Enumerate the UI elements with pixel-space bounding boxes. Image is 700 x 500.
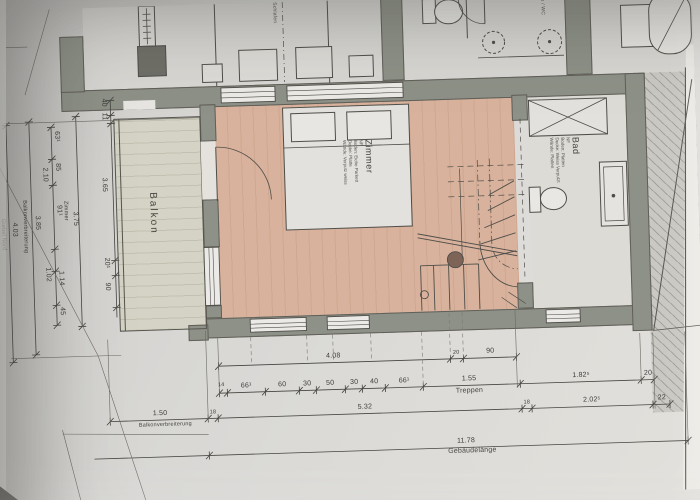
- dim-left: 20¹: [103, 258, 110, 269]
- dim-left: 45: [59, 307, 66, 315]
- toilet-tank-upper: [422, 0, 436, 24]
- dim-row3: 5.32: [358, 403, 373, 410]
- door-swing-arc: [216, 145, 272, 201]
- dim-row2: 14: [218, 382, 225, 388]
- dim-giebel-value: 4.03: [11, 222, 18, 237]
- dim-left: 1.14: [58, 271, 65, 286]
- dim-balkonverbreiterung-value: 3.85: [34, 216, 41, 231]
- dim-row3: 2.02⁵: [583, 396, 601, 404]
- dim-left: 91¹: [55, 205, 62, 216]
- dim-row2: 50: [326, 380, 334, 387]
- pillow: [347, 111, 392, 140]
- dim-left: 11: [101, 113, 108, 121]
- schlafen-room-label: Schlafen: [271, 2, 278, 23]
- bad-label-block: Bad NF Boden: Platten Decke: Weiss Verpu…: [549, 137, 584, 238]
- stairs: [415, 158, 528, 311]
- dim-row1: 4.08: [326, 352, 341, 359]
- dim-left: 40: [100, 99, 107, 107]
- pillow: [291, 112, 336, 141]
- dim-row2: 20: [644, 370, 652, 377]
- paper-left-edge: [0, 0, 6, 500]
- door-swing-arc: [458, 0, 485, 24]
- dim-row2: 30: [303, 380, 311, 387]
- dim-row2: 1.82⁵: [572, 372, 590, 380]
- dim-left: 2.10: [41, 167, 48, 182]
- du-wc-room-label: Du / WC: [539, 0, 546, 15]
- dim-row3: 1.50: [153, 410, 168, 417]
- dim-left-zimmer-value: 3.75: [72, 212, 79, 227]
- dim-row1: 90: [486, 348, 494, 355]
- zimmer-label-block: Zimmer NF Boden: Eiche Parkett Decke: Pl…: [342, 139, 377, 250]
- chimney: [138, 46, 167, 77]
- door-opening: [201, 141, 218, 199]
- furniture-rect: [296, 46, 333, 78]
- dim-row1: 20: [453, 350, 460, 356]
- dim-row3: 18: [524, 399, 531, 405]
- dim-left: 3.65: [101, 178, 108, 193]
- dim-row3: 22: [658, 394, 666, 401]
- floor-plan-photo: Balkon Zimmer NF Boden: Eiche Parkett De…: [0, 0, 700, 500]
- dim-row2: 66¹: [399, 377, 410, 384]
- stair-newel: [447, 251, 463, 267]
- treppen-label: Treppen: [456, 387, 483, 395]
- dim-left: 63¹: [53, 131, 60, 142]
- dim-row2: 60: [278, 381, 286, 388]
- dim-left: 90: [104, 283, 111, 291]
- toilet-tank: [529, 187, 541, 212]
- dim-left-zimmer-name: Zimmer: [62, 201, 69, 221]
- dim-row2: 1.55: [462, 375, 477, 382]
- dim-row2: 30: [350, 379, 358, 386]
- balkon-outline: [114, 117, 207, 332]
- plan-linework: [0, 0, 700, 500]
- furniture-rect: [349, 55, 374, 77]
- stair-walk-line: [489, 158, 517, 270]
- dim-left: 85: [54, 163, 61, 171]
- dim-left: 1.02: [44, 267, 51, 282]
- furniture-rect: [202, 64, 223, 83]
- balkon-room-label: Balkon: [147, 192, 159, 235]
- furniture-rect: [239, 49, 278, 81]
- dim-row4: 11.78: [457, 437, 475, 445]
- dim-row2: 66¹: [241, 382, 252, 389]
- plan-sheet: Balkon Zimmer NF Boden: Eiche Parkett De…: [0, 0, 700, 500]
- dim-row2: 40: [370, 378, 378, 385]
- dim-row3: 18: [210, 409, 217, 415]
